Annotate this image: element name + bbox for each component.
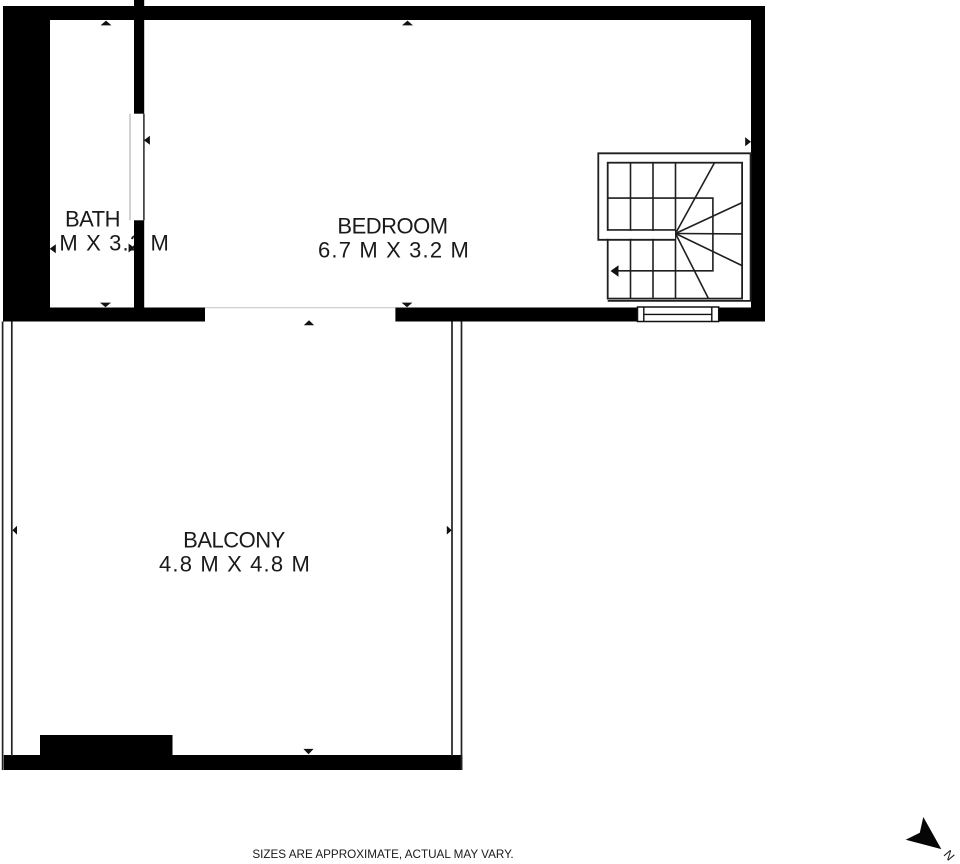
svg-text:BEDROOM: BEDROOM (337, 214, 447, 239)
svg-text:SIZES ARE APPROXIMATE, ACTUAL: SIZES ARE APPROXIMATE, ACTUAL MAY VARY. (252, 848, 513, 861)
svg-text:N: N (941, 848, 958, 864)
svg-text:6.7 M X 3.2 M: 6.7 M X 3.2 M (318, 238, 470, 263)
svg-text:4.8 M X 4.8 M: 4.8 M X 4.8 M (159, 552, 311, 577)
svg-text:BATH: BATH (65, 207, 120, 232)
svg-text:BALCONY: BALCONY (183, 528, 285, 553)
